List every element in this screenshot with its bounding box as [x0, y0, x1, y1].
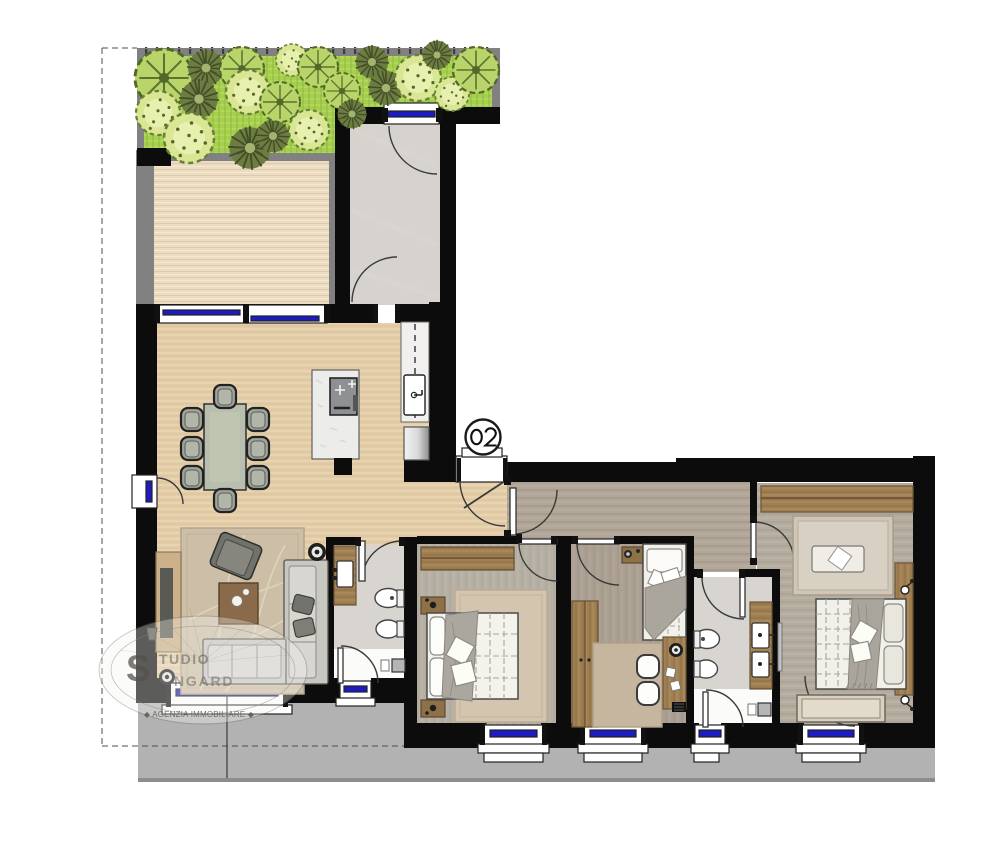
svg-text:TUDIO: TUDIO [159, 651, 210, 667]
svg-text:◆ AGENZIA IMMOBILIARE ◆: ◆ AGENZIA IMMOBILIARE ◆ [144, 710, 255, 719]
svg-text:S: S [126, 648, 151, 689]
svg-text:NGARD: NGARD [174, 673, 234, 689]
